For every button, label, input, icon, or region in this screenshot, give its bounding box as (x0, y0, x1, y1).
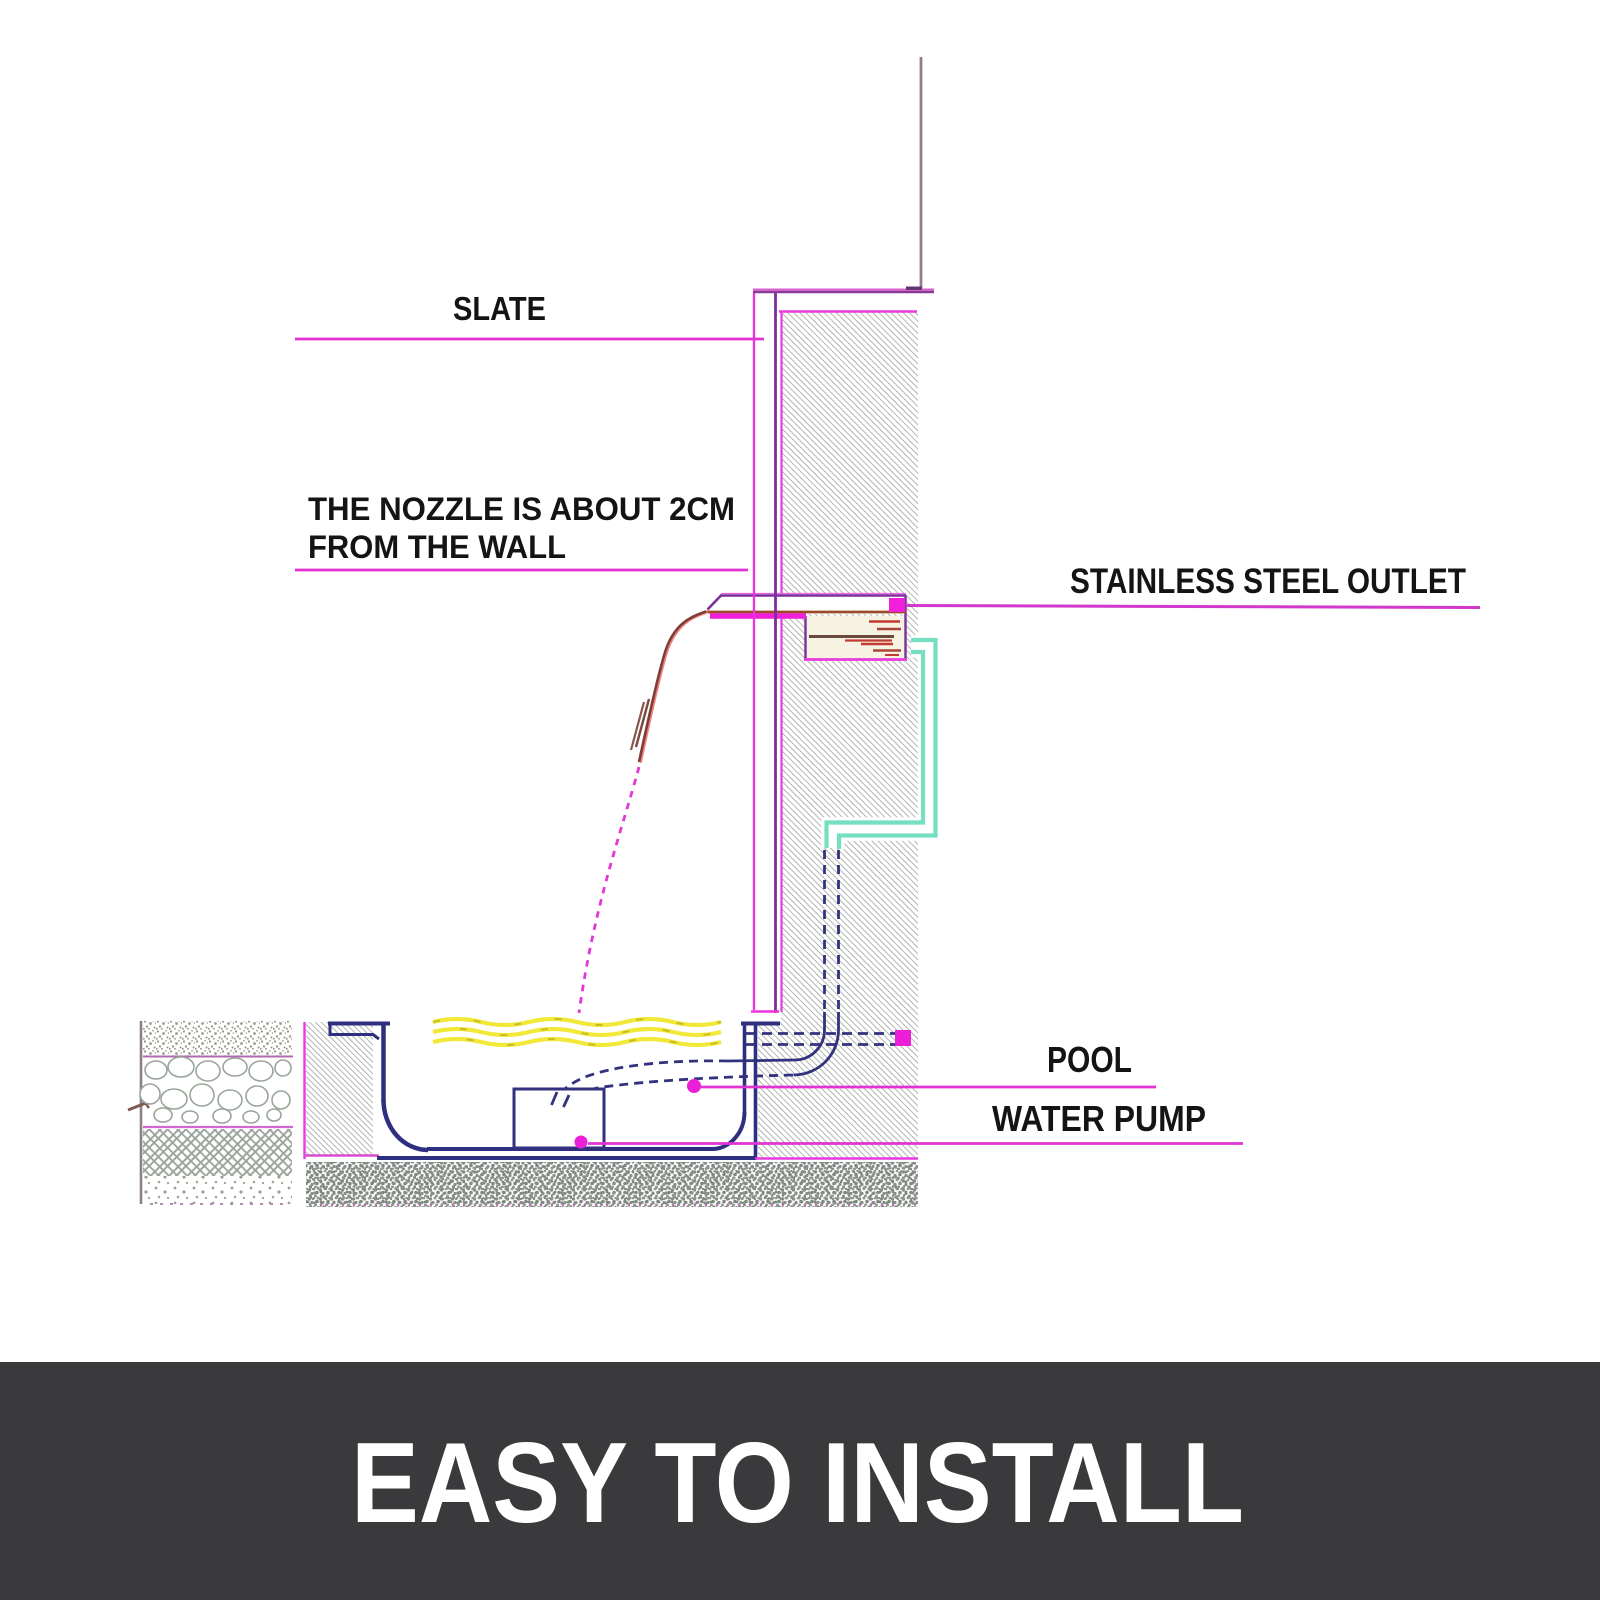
svg-text:EASY TO INSTALL: EASY TO INSTALL (351, 1420, 1244, 1547)
svg-text:THE NOZZLE IS ABOUT 2CM: THE NOZZLE IS ABOUT 2CM (308, 491, 735, 527)
svg-text:STAINLESS STEEL OUTLET: STAINLESS STEEL OUTLET (1070, 562, 1466, 601)
svg-text:WATER PUMP: WATER PUMP (992, 1098, 1206, 1139)
svg-text:POOL: POOL (1047, 1039, 1132, 1080)
svg-text:FROM THE WALL: FROM THE WALL (308, 529, 566, 565)
svg-text:SLATE: SLATE (453, 290, 546, 327)
